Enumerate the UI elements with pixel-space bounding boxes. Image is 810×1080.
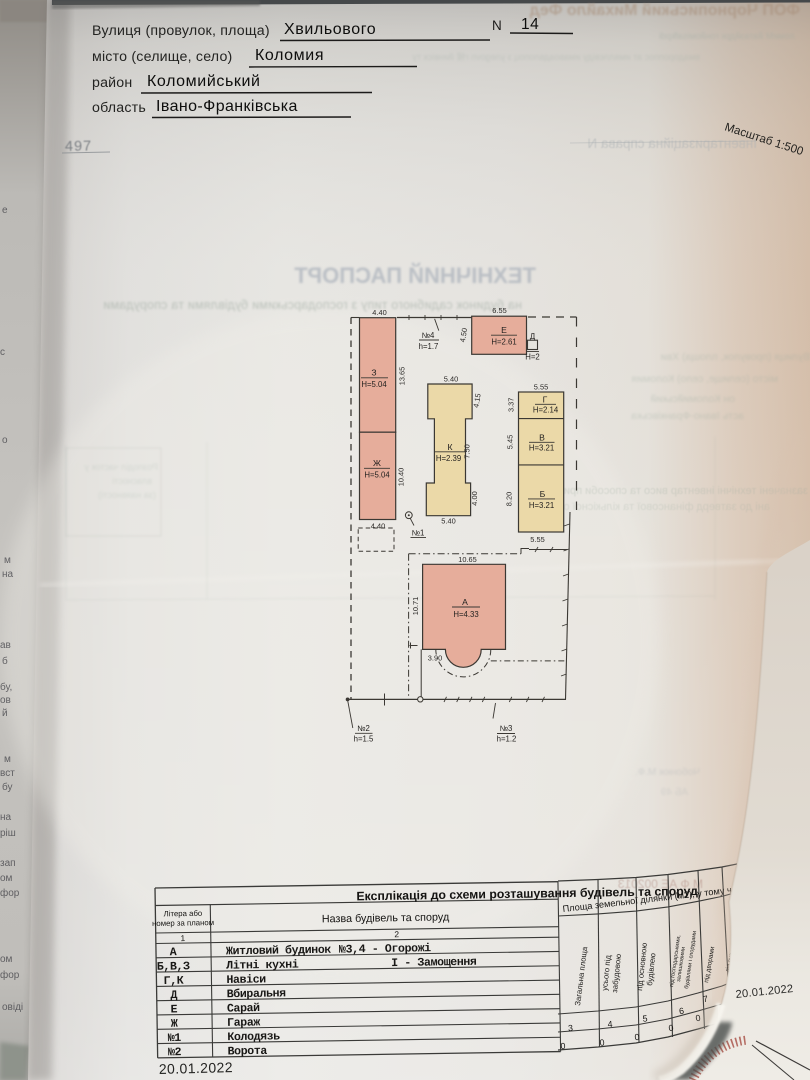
svg-text:5.40: 5.40: [441, 517, 455, 526]
svg-text:5.55: 5.55: [534, 383, 548, 392]
svg-text:Інвентаризаційна справа N: Інвентаризаційна справа N: [587, 136, 757, 151]
svg-text:власності: власності: [112, 476, 152, 486]
svg-text:номер за планом: номер за планом: [152, 918, 214, 928]
svg-text:Ворота: Ворота: [227, 1045, 267, 1059]
svg-text:Сарай: Сарай: [227, 1002, 260, 1016]
svg-text:зап: зап: [0, 858, 16, 869]
svg-text:Г,К: Г,К: [164, 975, 184, 988]
svg-text:Назва будівель та споруд: Назва будівель та споруд: [322, 911, 450, 925]
svg-text:14: 14: [521, 16, 539, 33]
svg-text:№1: №1: [412, 529, 425, 538]
svg-text:м: м: [4, 555, 11, 566]
svg-text:№2: №2: [168, 1046, 182, 1059]
svg-text:ом: ом: [0, 873, 13, 884]
svg-text:Розподіл часток у: Розподіл часток у: [84, 462, 158, 472]
svg-text:Б: Б: [540, 489, 546, 499]
svg-text:АБ 49: АБ 49: [660, 787, 688, 798]
svg-text:К: К: [447, 442, 452, 452]
svg-text:5.40: 5.40: [444, 375, 458, 384]
svg-text:0: 0: [599, 1037, 605, 1047]
svg-text:4: 4: [607, 1019, 613, 1029]
svg-text:H=3.21: H=3.21: [529, 444, 554, 453]
svg-text:1: 1: [180, 933, 185, 943]
svg-text:H=2.39: H=2.39: [436, 454, 461, 463]
svg-text:асть Івано-Франківська: асть Івано-Франківська: [631, 410, 744, 422]
svg-text:З: З: [371, 368, 376, 378]
svg-text:h=1.5: h=1.5: [354, 735, 374, 744]
svg-text:А: А: [170, 946, 177, 959]
svg-text:Вулиця (провулок, площа): Вулиця (провулок, площа): [92, 23, 270, 39]
svg-text:на будинок садибного типу з го: на будинок садибного типу з господарськи…: [103, 298, 522, 312]
svg-text:район: район: [92, 75, 132, 91]
svg-text:ані до затверд фінансової та к: ані до затверд фінансової та кількісної …: [536, 501, 770, 513]
svg-text:H=2: H=2: [525, 353, 540, 362]
svg-text:6.55: 6.55: [492, 306, 506, 315]
svg-text:H=5.04: H=5.04: [364, 471, 390, 480]
svg-text:Вулиця (провулок, площа) Хви: Вулиця (провулок, площа) Хви: [661, 351, 810, 363]
svg-text:Ж: Ж: [373, 458, 381, 468]
svg-text:ав: ав: [0, 640, 11, 651]
svg-text:Д: Д: [170, 989, 177, 1002]
svg-text:й: й: [2, 708, 8, 719]
svg-text:Чобонюк М.Ф.: Чобонюк М.Ф.: [635, 766, 700, 778]
svg-text:0: 0: [560, 1041, 566, 1051]
svg-text:H=5.04: H=5.04: [361, 380, 387, 389]
svg-text:Навіси: Навіси: [226, 973, 266, 987]
svg-text:о: о: [2, 435, 8, 446]
svg-text:h=1.2: h=1.2: [497, 735, 517, 744]
svg-text:Е: Е: [501, 325, 507, 335]
svg-text:Вбиральня: Вбиральня: [227, 987, 287, 1001]
svg-text:h=1.7: h=1.7: [419, 342, 439, 351]
svg-text:область: область: [92, 100, 146, 116]
svg-text:с: с: [0, 347, 5, 358]
svg-text:3.37: 3.37: [507, 398, 516, 412]
svg-text:овіді: овіді: [2, 1002, 23, 1013]
svg-text:5.55: 5.55: [530, 535, 544, 544]
svg-text:Хвильового: Хвильового: [284, 21, 376, 38]
svg-text:Гараж: Гараж: [227, 1016, 260, 1030]
svg-text:H=4.33: H=4.33: [453, 610, 478, 619]
svg-text:на: на: [2, 569, 14, 580]
svg-text:ФОП Чорнописький Михайло Фед: ФОП Чорнописький Михайло Фед: [530, 2, 800, 19]
svg-text:№1: №1: [168, 1032, 182, 1045]
svg-text:Літера або: Літера або: [164, 909, 203, 919]
svg-text:3: 3: [568, 1023, 574, 1033]
svg-text:вмадороппос ат имяллєвіду имав: вмадороппос ат имяллєвіду имавоадвлопоц …: [412, 51, 700, 62]
svg-text:N: N: [492, 18, 502, 33]
svg-text:місто (селище, село) Коломия: місто (селище, село) Коломия: [632, 373, 779, 385]
svg-text:H=2.61: H=2.61: [491, 338, 516, 347]
svg-text:ом: ом: [0, 954, 13, 965]
svg-text:2: 2: [394, 929, 399, 939]
svg-text:4.40: 4.40: [372, 308, 386, 317]
svg-text:В: В: [539, 433, 545, 443]
svg-text:вст: вст: [0, 768, 15, 779]
svg-text:Коломийський: Коломийський: [147, 73, 261, 90]
svg-text:20.01.2022: 20.01.2022: [159, 1059, 233, 1077]
svg-text:Ж: Ж: [171, 1018, 178, 1031]
svg-text:Г: Г: [543, 395, 548, 405]
svg-text:місто (селище, село): місто (селище, село): [92, 49, 232, 65]
svg-text:10.71: 10.71: [411, 597, 420, 616]
svg-text:А: А: [462, 597, 468, 607]
svg-text:4.00: 4.00: [470, 491, 479, 505]
svg-text:5.45: 5.45: [506, 435, 515, 449]
svg-text:H=2.14: H=2.14: [533, 406, 559, 415]
svg-text:бу: бу: [2, 781, 13, 793]
svg-text:3.90: 3.90: [428, 654, 442, 663]
svg-text:на: на: [0, 812, 12, 823]
svg-text:б: б: [2, 655, 8, 667]
svg-text:е: е: [2, 205, 8, 216]
svg-text:13.65: 13.65: [398, 367, 407, 386]
svg-text:10.65: 10.65: [458, 555, 477, 564]
svg-text:фор: фор: [0, 969, 20, 981]
svg-text:№2: №2: [357, 724, 370, 733]
svg-text:Івано-Франківська: Івано-Франківська: [156, 98, 298, 115]
svg-text:4.40: 4.40: [371, 522, 385, 531]
svg-text:Д: Д: [530, 332, 536, 341]
svg-text:ов: ов: [0, 695, 11, 706]
svg-text:H=3.21: H=3.21: [529, 501, 554, 510]
svg-text:8.20: 8.20: [505, 492, 514, 506]
svg-text:Б,В,З: Б,В,З: [157, 960, 190, 974]
svg-text:10.40: 10.40: [397, 468, 406, 487]
svg-text:Коломия: Коломия: [255, 47, 324, 64]
svg-text:(за наявності): (за наявності): [98, 490, 156, 500]
svg-text:фор: фор: [0, 887, 20, 899]
svg-text:№4: №4: [422, 331, 435, 340]
svg-text:№3: №3: [500, 724, 513, 733]
svg-text:ріш: ріш: [0, 828, 16, 839]
svg-text:ТЕХНІЧНИЙ ПАСПОРТ: ТЕХНІЧНИЙ ПАСПОРТ: [294, 263, 536, 288]
svg-text:ломиМ йатазйдрк гонйоміsafkpdі: ломиМ йатазйдрк гонйоміsafkpdі: [659, 31, 795, 41]
svg-text:бу,: бу,: [0, 681, 12, 693]
svg-text:зазначені технічні інвентар ви: зазначені технічні інвентар висо та спос…: [528, 485, 809, 497]
svg-text:он Коломийський: он Коломийський: [651, 393, 735, 405]
svg-text:Колодязь: Колодязь: [227, 1030, 280, 1044]
svg-text:м: м: [4, 754, 11, 765]
svg-text:Е: Е: [171, 1003, 178, 1016]
